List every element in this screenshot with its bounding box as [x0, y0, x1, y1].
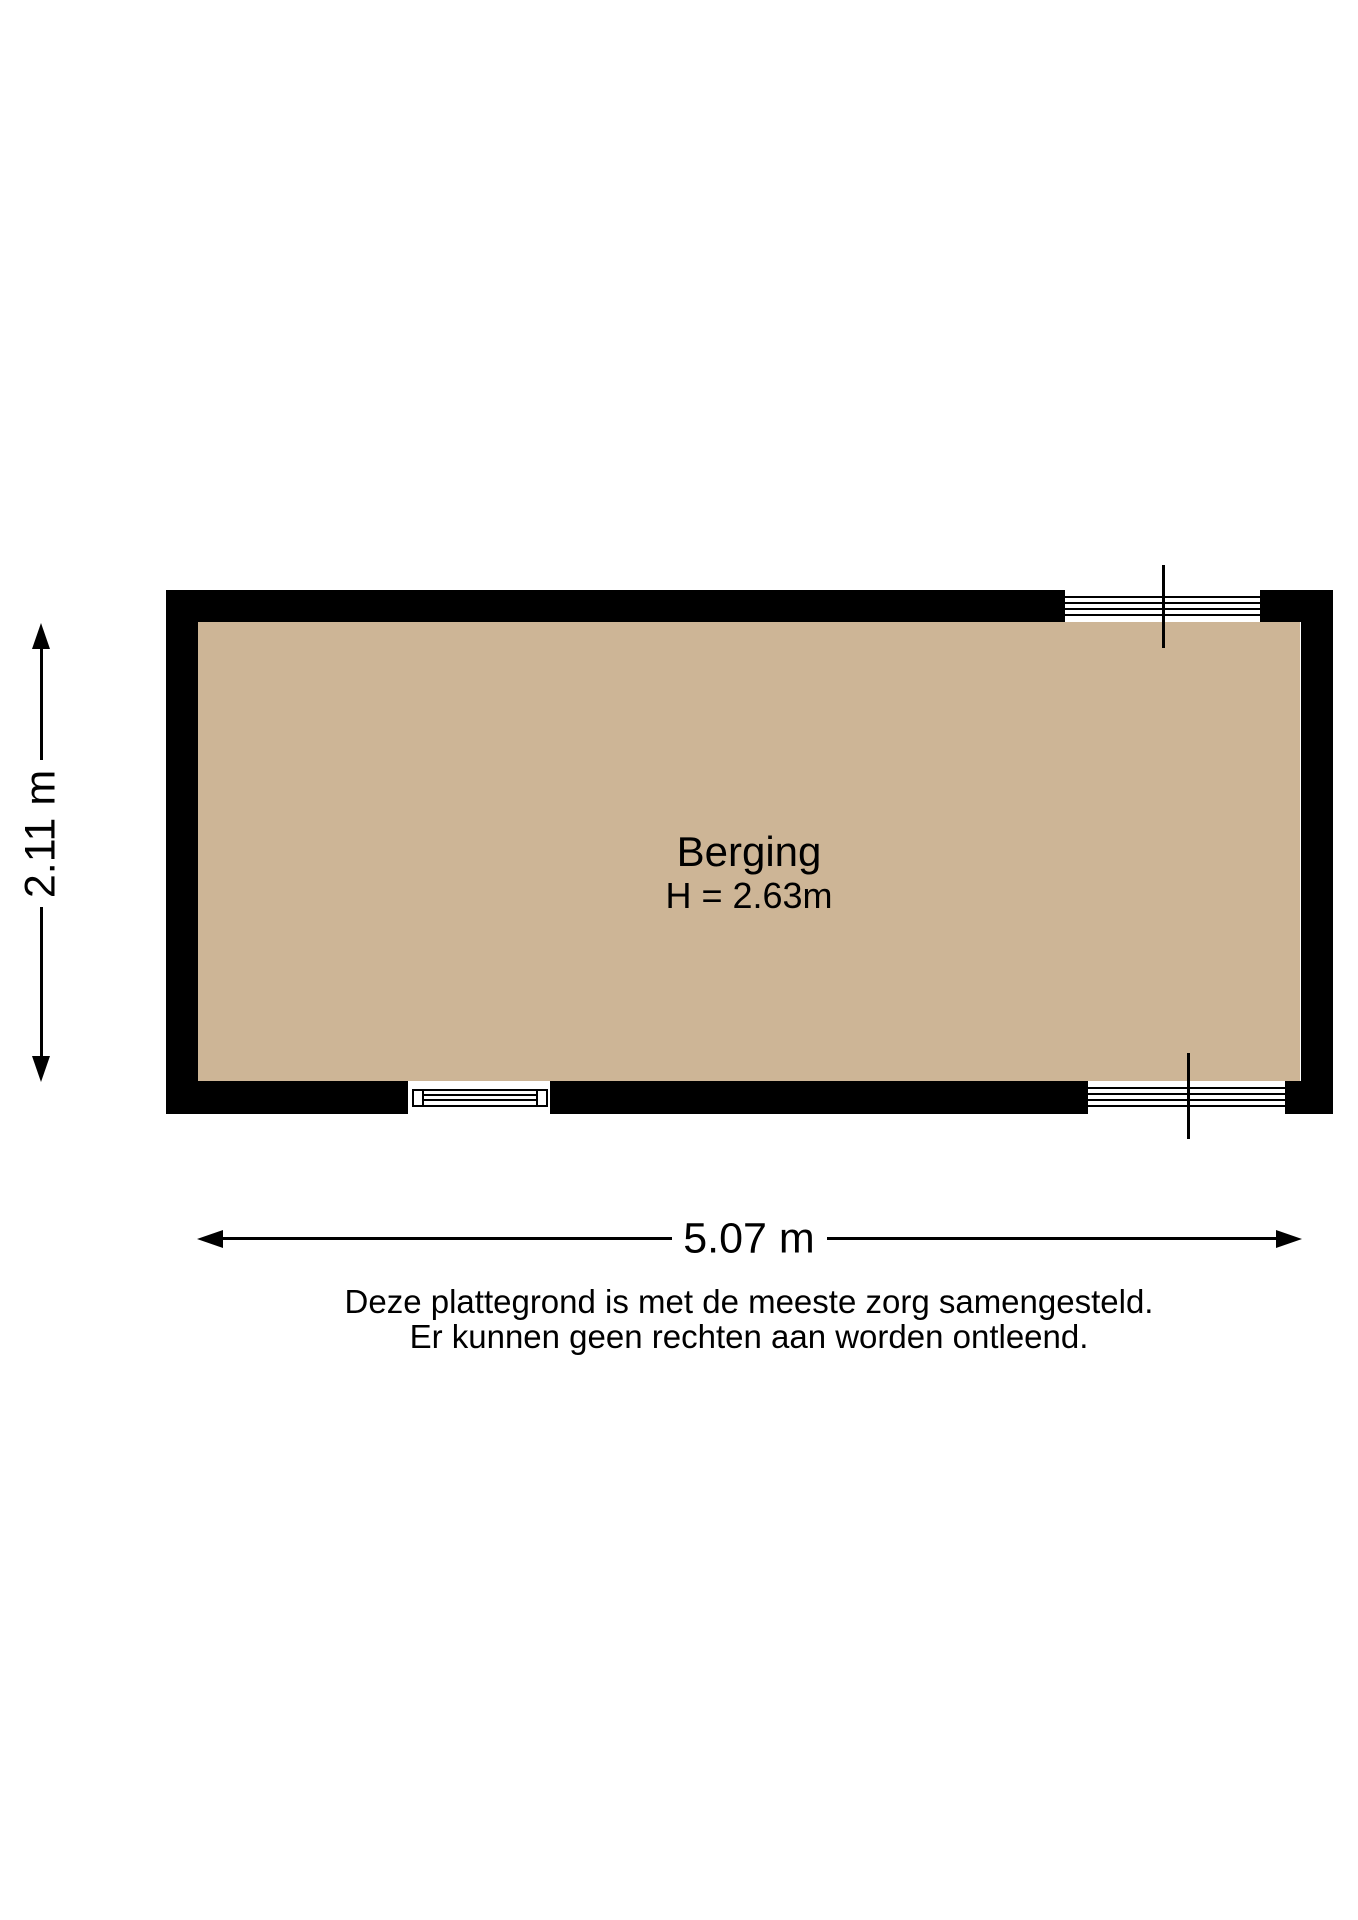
depth-dimension-line-upper — [40, 649, 43, 760]
window-frame — [412, 1089, 548, 1107]
wall-bottom-middle — [550, 1081, 1088, 1114]
disclaimer-line-2: Er kunnen geen rechten aan worden ontlee… — [345, 1319, 1154, 1354]
wall-top — [166, 590, 1065, 622]
depth-dimension-label: 2.11 m — [17, 770, 66, 898]
floorplan-page: Berging H = 2.63m 2.11 m 5.07 m Deze pla… — [0, 0, 1358, 1920]
wall-bottom-left — [166, 1081, 408, 1114]
window-center-tick-bottom — [1187, 1053, 1190, 1139]
disclaimer-text: Deze plattegrond is met de meeste zorg s… — [345, 1284, 1154, 1354]
disclaimer-line-1: Deze plattegrond is met de meeste zorg s… — [345, 1284, 1154, 1319]
room-label: Berging H = 2.63m — [665, 829, 832, 917]
window-bottom-left — [408, 1081, 550, 1114]
width-dimension-label: 5.07 m — [683, 1215, 814, 1264]
room-name-label: Berging — [665, 829, 832, 875]
wall-left — [166, 590, 198, 1114]
room-height-label: H = 2.63m — [665, 875, 832, 917]
width-dimension-line-left — [223, 1237, 672, 1240]
wall-right — [1301, 590, 1333, 1114]
arrowhead-right-icon — [1276, 1230, 1302, 1248]
depth-dimension-line-lower — [40, 907, 43, 1056]
arrowhead-up-icon — [32, 623, 50, 649]
wall-bottom-right-corner — [1285, 1081, 1333, 1114]
window-center-tick-top — [1162, 565, 1165, 648]
arrowhead-left-icon — [197, 1230, 223, 1248]
arrowhead-down-icon — [32, 1056, 50, 1082]
width-dimension-line-right — [827, 1237, 1276, 1240]
